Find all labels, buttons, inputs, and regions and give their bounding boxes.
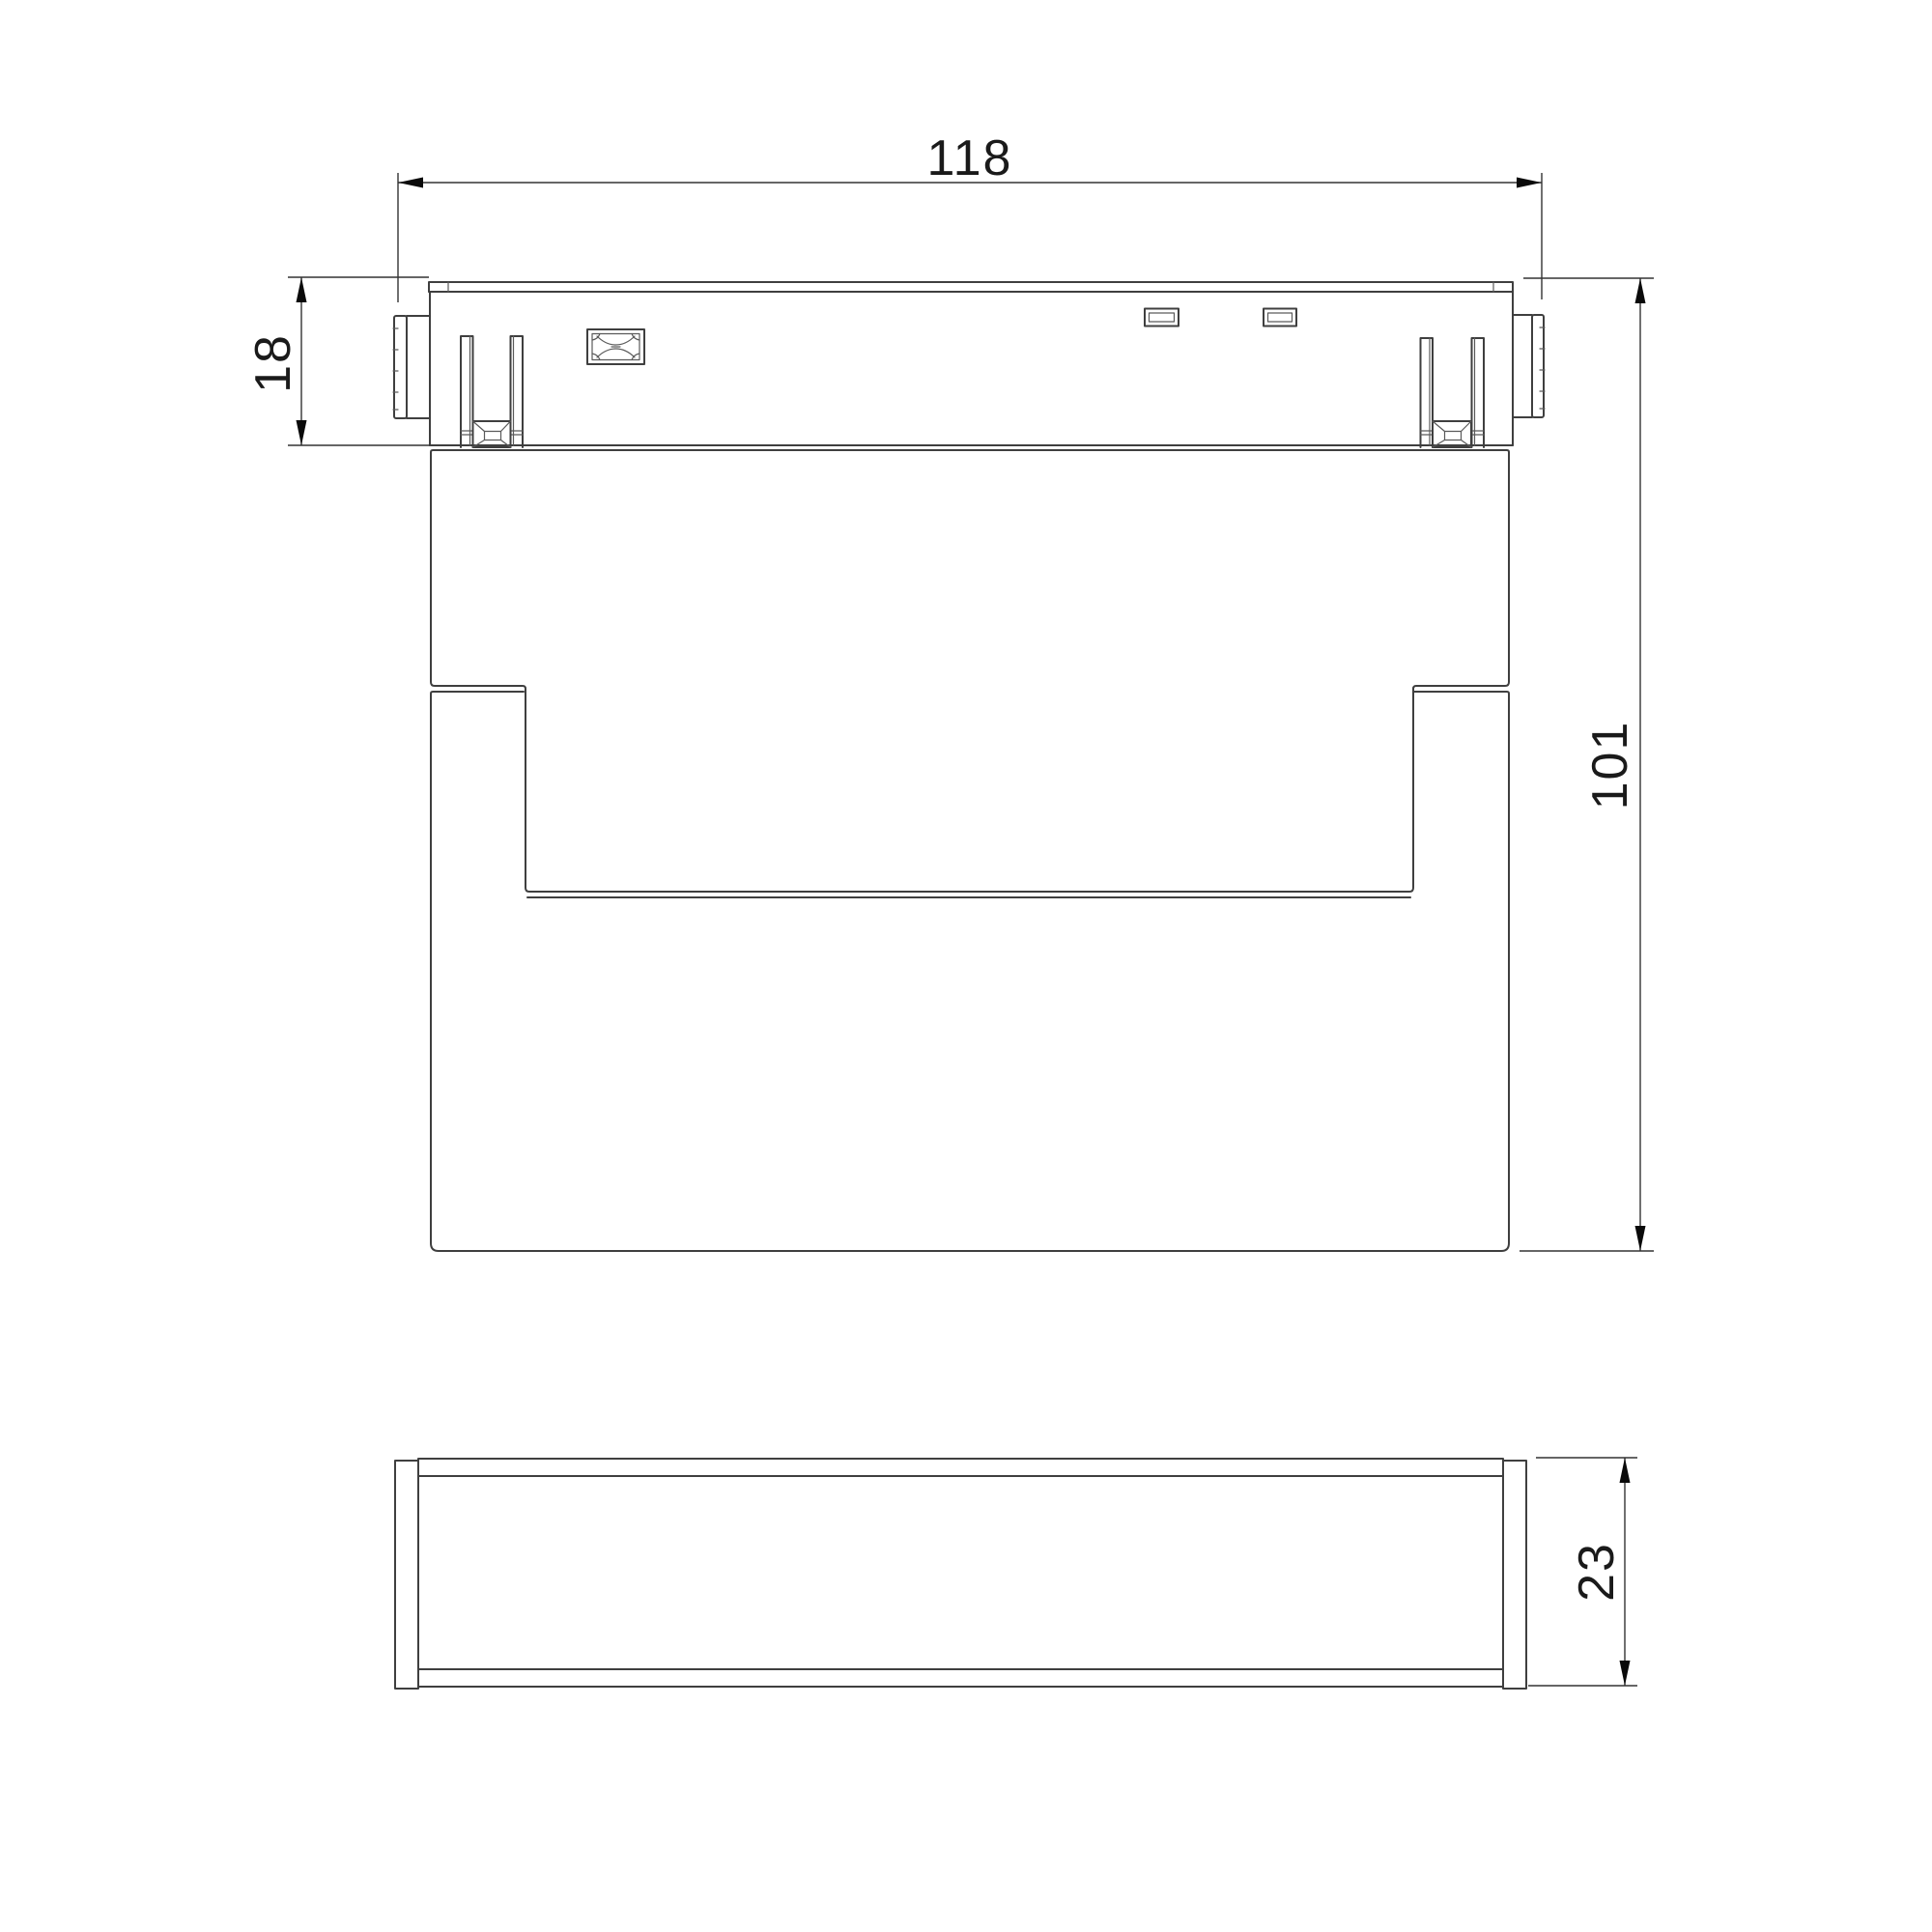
profile-bar: [418, 1459, 1503, 1687]
dimension-depth: 23: [1528, 1458, 1637, 1686]
arrowhead-down-icon: [1635, 1226, 1646, 1251]
drawing-canvas: 118 18 101: [0, 0, 1932, 1932]
left-end-cap: [395, 1461, 418, 1689]
arrowhead-up-icon: [1620, 1458, 1631, 1483]
adapter-body: [430, 292, 1513, 445]
right-end-cap: [1503, 1461, 1526, 1689]
dimension-label-body-height: 101: [1582, 721, 1638, 810]
arrowhead-left-icon: [398, 178, 423, 188]
arrowhead-down-icon: [1620, 1661, 1631, 1686]
lamp-head-upper: [431, 450, 1509, 897]
vent-slot-1: [1145, 309, 1179, 327]
dimension-label-width: 118: [927, 130, 1013, 186]
adapter-top-bar: [429, 282, 1513, 292]
dimension-label-depth: 23: [1569, 1542, 1625, 1602]
left-clip: [473, 421, 511, 447]
left-connector-tab: [393, 316, 430, 418]
right-connector-tab: [1514, 315, 1545, 417]
dimension-body-height: 101: [1520, 278, 1654, 1251]
arrowhead-up-icon: [1635, 278, 1646, 303]
side-view: 23: [395, 1458, 1637, 1689]
grommet-box: [587, 329, 644, 364]
lamp-head-lower: [431, 692, 1509, 1251]
dimension-drawing-svg: 118 18 101: [0, 0, 1932, 1932]
front-view: 118 18 101: [245, 130, 1654, 1251]
right-clip: [1433, 421, 1471, 447]
arrowhead-right-icon: [1517, 178, 1542, 188]
right-spring-prongs: [1421, 338, 1485, 447]
dimension-adapter-height: 18: [245, 277, 430, 445]
arrowhead-down-icon: [297, 420, 307, 445]
arrowhead-up-icon: [297, 277, 307, 302]
dimension-overall-width: 118: [398, 130, 1542, 302]
dimension-label-adapter-height: 18: [245, 333, 301, 393]
vent-slot-2: [1264, 309, 1296, 327]
left-spring-prongs: [461, 336, 523, 447]
